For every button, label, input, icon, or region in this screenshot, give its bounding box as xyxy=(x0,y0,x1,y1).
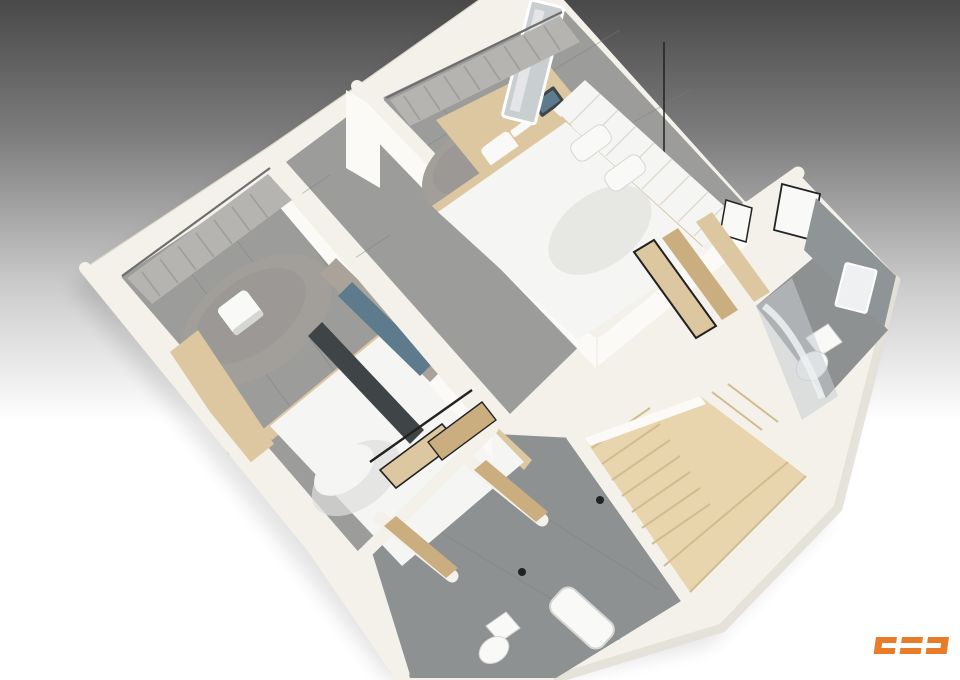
render-stage xyxy=(0,0,960,680)
logo-equals-bars xyxy=(900,637,923,654)
logo-left-bracket-c xyxy=(874,637,897,654)
door-stop-dot-2 xyxy=(596,496,604,504)
logo-right-bracket-c xyxy=(926,637,949,654)
floorplan-scene xyxy=(0,0,960,680)
brand-logo xyxy=(874,637,949,654)
door-stop-dot-1 xyxy=(518,568,526,576)
